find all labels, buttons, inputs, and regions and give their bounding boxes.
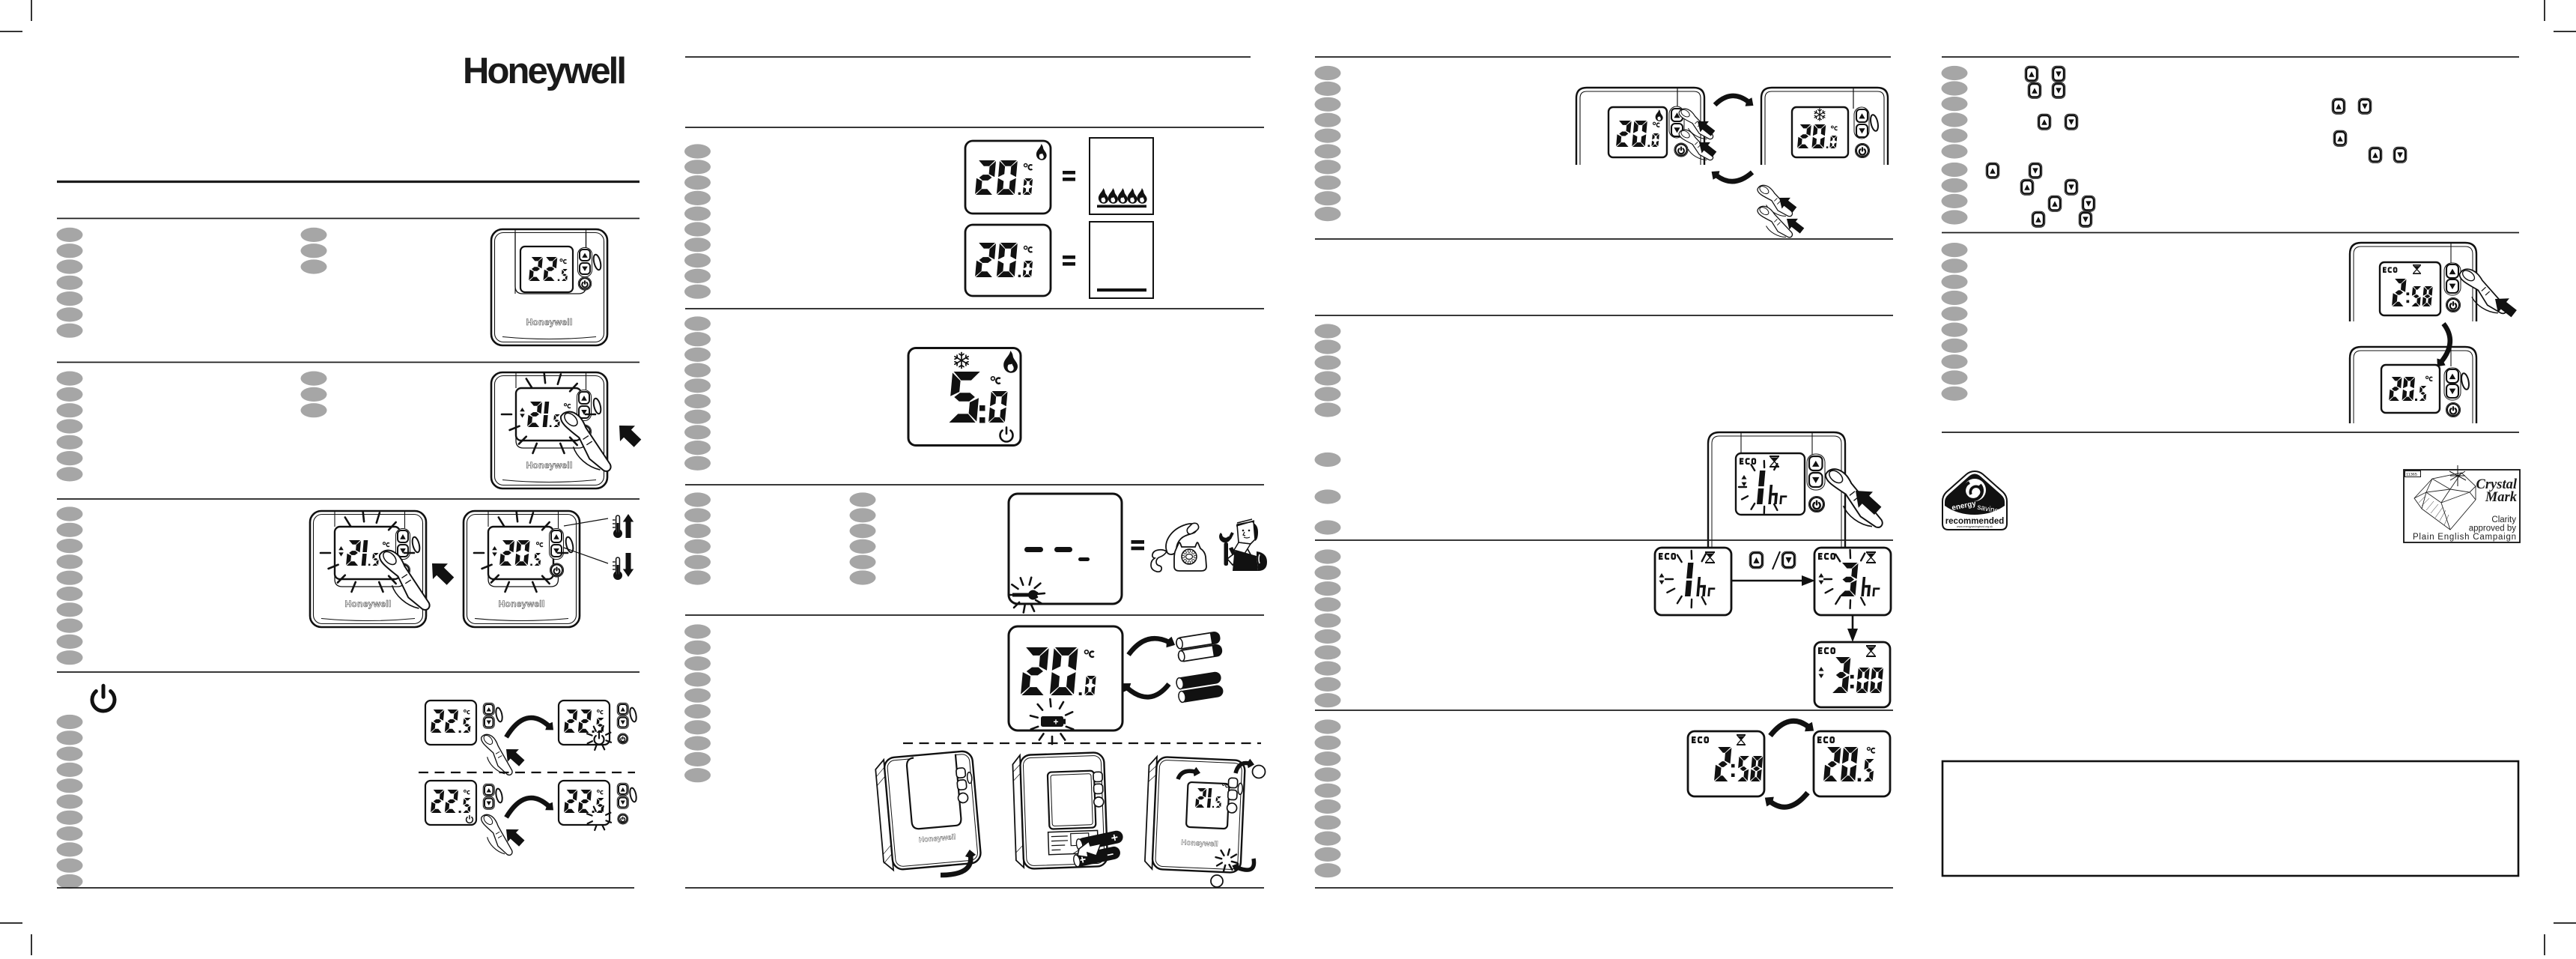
svg-text:Honeywell: Honeywell xyxy=(526,317,572,327)
svg-text:approved by: approved by xyxy=(2469,524,2517,533)
svg-text:Plain English Campaign: Plain English Campaign xyxy=(2413,533,2516,542)
svg-text:Honeywell: Honeywell xyxy=(344,599,391,609)
svg-text:Mark: Mark xyxy=(2485,490,2518,505)
svg-text:Honeywell: Honeywell xyxy=(1181,839,1218,849)
svg-text:11365: 11365 xyxy=(2406,473,2417,477)
svg-text:www.energysavingtrust.org.uk: www.energysavingtrust.org.uk xyxy=(1957,525,1993,528)
svg-text:Honeywell: Honeywell xyxy=(526,460,572,471)
svg-text:Honeywell: Honeywell xyxy=(463,51,626,91)
svg-text:Honeywell: Honeywell xyxy=(498,599,544,609)
svg-text:Clarity: Clarity xyxy=(2491,515,2516,524)
svg-text:+: + xyxy=(1053,717,1058,727)
